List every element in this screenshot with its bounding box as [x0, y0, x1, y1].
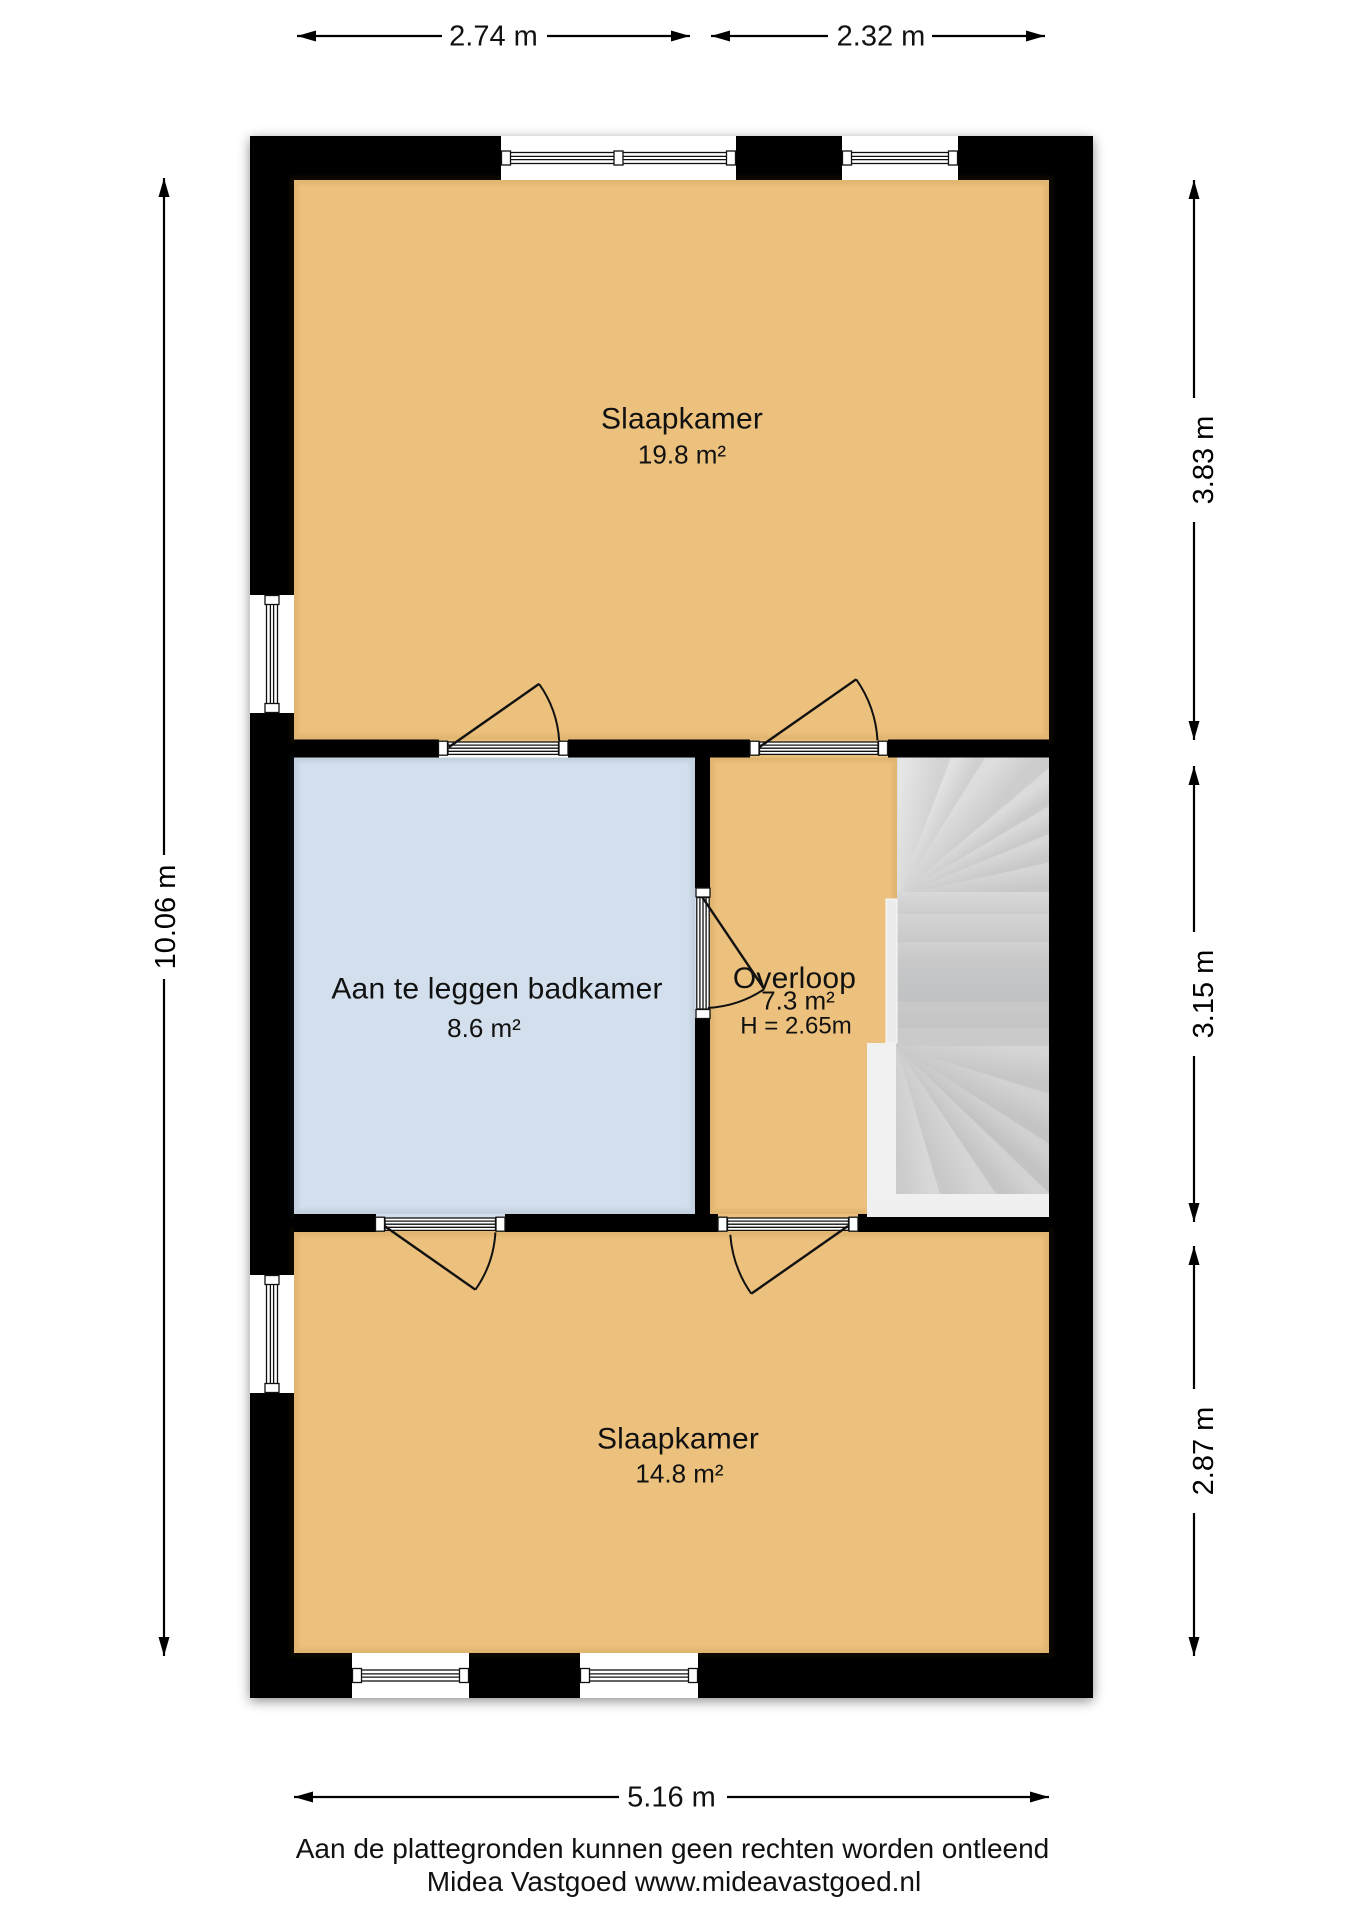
svg-text:3.83 m: 3.83 m — [1188, 416, 1220, 505]
svg-text:2.32 m: 2.32 m — [837, 21, 926, 53]
svg-text:2.87 m: 2.87 m — [1188, 1407, 1220, 1496]
svg-text:H = 2.65m: H = 2.65m — [740, 1013, 851, 1040]
svg-text:Aan te leggen badkamer: Aan te leggen badkamer — [331, 973, 662, 1006]
svg-text:Aan de plattegronden kunnen ge: Aan de plattegronden kunnen geen rechten… — [296, 1833, 1049, 1864]
svg-text:14.8 m²: 14.8 m² — [635, 1459, 723, 1489]
svg-text:2.74 m: 2.74 m — [449, 21, 538, 53]
svg-text:7.3 m²: 7.3 m² — [761, 986, 835, 1016]
svg-text:3.15 m: 3.15 m — [1188, 950, 1220, 1039]
svg-text:Slaapkamer: Slaapkamer — [601, 403, 763, 436]
svg-text:5.16 m: 5.16 m — [627, 1782, 716, 1814]
svg-text:8.6 m²: 8.6 m² — [447, 1013, 521, 1043]
svg-text:Slaapkamer: Slaapkamer — [597, 1423, 759, 1456]
svg-text:Midea Vastgoed www.mideavastgo: Midea Vastgoed www.mideavastgoed.nl — [427, 1866, 921, 1897]
svg-text:19.8 m²: 19.8 m² — [638, 440, 726, 470]
svg-text:10.06 m: 10.06 m — [150, 865, 182, 970]
